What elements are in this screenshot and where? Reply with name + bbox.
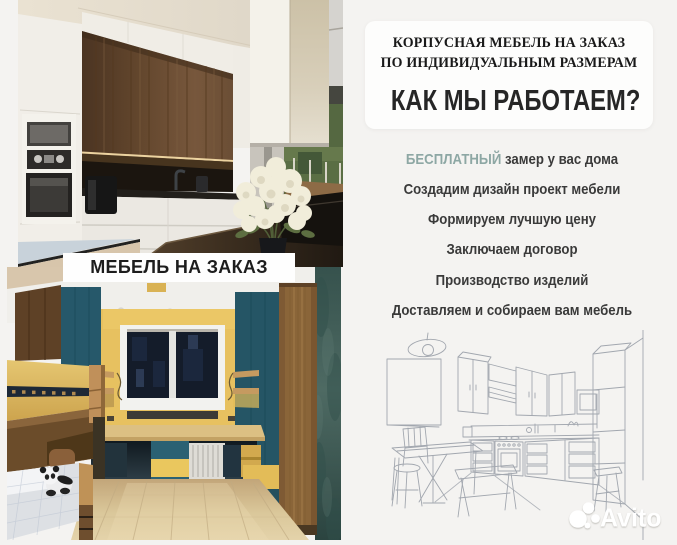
svg-text:Avito: Avito	[600, 504, 661, 533]
